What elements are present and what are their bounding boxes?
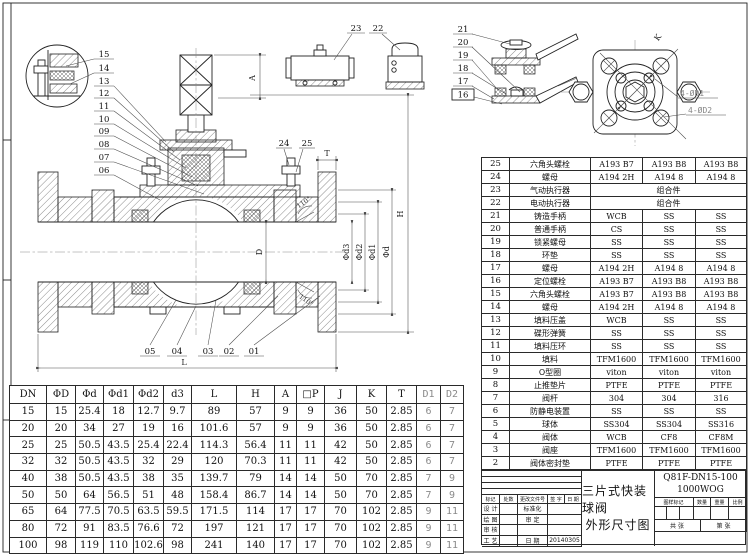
table-cell: 22.4 [164, 437, 192, 454]
table-cell: 70 [325, 520, 357, 537]
table-cell: WCB [591, 210, 643, 223]
table-cell: 25.4 [134, 437, 164, 454]
table-cell: SS [643, 236, 696, 249]
table-cell: 球体 [510, 418, 591, 431]
table-cell: 2.85 [387, 520, 417, 537]
callout-09: 09 [99, 127, 110, 137]
table-cell: A193 B8 [643, 158, 696, 171]
table-cell: 9 [297, 420, 325, 437]
dim-label-L: L [181, 358, 187, 367]
table-cell: 158.4 [192, 487, 237, 504]
table-cell: CF8M [696, 431, 747, 444]
table-cell: SS [696, 327, 747, 340]
callout-15: 15 [99, 50, 110, 60]
table-row: 2阀体密封垫PTFEPTFEPTFE [482, 457, 747, 470]
parts-material-table: 25六角头螺栓A193 B7A193 B8A193 B824螺母A194 2HA… [481, 157, 747, 497]
table-cell: 16 [164, 420, 192, 437]
callout-10: 10 [99, 115, 110, 125]
table-cell: 20 [10, 420, 47, 437]
dim-label-4-D1: 4-ØD1 [680, 88, 704, 98]
pneumatic-actuator-view: 23 [286, 24, 365, 86]
callout-24: 24 [279, 139, 290, 149]
table-cell: 9 [275, 420, 297, 437]
table-cell: viton [591, 366, 643, 379]
table-cell: 76.6 [134, 520, 164, 537]
table-cell: 18 [482, 249, 510, 262]
table-cell: 2.85 [387, 420, 417, 437]
table-cell: 140 [237, 537, 275, 554]
callout-13: 13 [99, 77, 110, 87]
table-cell: 83.5 [104, 520, 134, 537]
table-cell: 11 [297, 437, 325, 454]
table-cell: 23 [482, 184, 510, 197]
table-cell: CF8 [643, 431, 696, 444]
electric-actuator-view: 22 [369, 24, 424, 89]
table-cell: 9.7 [164, 404, 192, 421]
table-cell: 14 [275, 487, 297, 504]
table-cell: 70.3 [237, 454, 275, 471]
table-cell: PTFE [696, 379, 747, 392]
table-cell: SS [696, 405, 747, 418]
table-cell: SS [643, 340, 696, 353]
table-cell: 25 [47, 437, 76, 454]
table-cell: 50 [357, 404, 387, 421]
table-cell: SS [591, 340, 643, 353]
field-approve: 审 定 [518, 515, 548, 526]
callout-01: 01 [249, 347, 260, 357]
table-cell: 50 [357, 437, 387, 454]
table-cell: 11 [275, 437, 297, 454]
table-cell: 2.85 [387, 454, 417, 471]
dimension-table: DNΦDΦdΦd1Φd2d3LHA□PJKTD1D2 151525.41812.… [9, 385, 464, 554]
table-cell: 11 [441, 504, 464, 521]
drawing-title-line1: 三片式快装球阀 [582, 483, 654, 517]
table-cell: SS [696, 210, 747, 223]
table-cell: 7 [441, 420, 464, 437]
header-cell: Φd2 [134, 386, 164, 404]
table-cell: A194 8 [696, 262, 747, 275]
table-cell: 7 [417, 487, 441, 504]
table-cell: SS316 [696, 418, 747, 431]
header-cell: A [275, 386, 297, 404]
drawing-sheet: .s{fill:#fff;stroke:#222;stroke-width:0.… [0, 0, 750, 555]
table-cell: 17 [275, 504, 297, 521]
table-cell: WCB [591, 314, 643, 327]
table-cell: 9 [417, 537, 441, 554]
table-cell: 56.5 [104, 487, 134, 504]
table-cell: SS [696, 249, 747, 262]
table-cell: 六角头螺栓 [510, 158, 591, 171]
table-cell: 72 [47, 520, 76, 537]
table-row: 323250.543.5322912070.3111142502.8567 [10, 454, 464, 471]
table-cell: 304 [643, 392, 696, 405]
table-cell: 114 [237, 504, 275, 521]
table-cell: 50 [357, 420, 387, 437]
table-row: 23气动执行器组合件 [482, 184, 747, 197]
header-cell: ΦD [47, 386, 76, 404]
table-cell: 12.7 [134, 404, 164, 421]
table-cell: 9 [275, 404, 297, 421]
table-cell: PTFE [591, 379, 643, 392]
table-cell: 86.7 [237, 487, 275, 504]
table-row: 8止推垫片PTFEPTFEPTFE [482, 379, 747, 392]
table-cell: SS [643, 210, 696, 223]
table-row: 18环垫SSSSSS [482, 249, 747, 262]
table-cell: 89 [192, 404, 237, 421]
field-check: 审 核 [482, 525, 500, 536]
table-cell: 4 [482, 431, 510, 444]
handle-view-plain [492, 77, 578, 103]
table-cell: 32 [134, 454, 164, 471]
field-quantity: 数量 [694, 498, 711, 507]
table-row: 19锁紧螺母SSSSSS [482, 236, 747, 249]
callout-04: 04 [172, 347, 183, 357]
table-cell: 7 [441, 437, 464, 454]
table-cell: 38 [47, 470, 76, 487]
field-scale: 比例 [729, 498, 747, 507]
table-cell: 43.5 [104, 454, 134, 471]
table-cell: 13 [482, 314, 510, 327]
table-cell: 碟形弹簧 [510, 327, 591, 340]
table-cell: 48 [164, 487, 192, 504]
table-cell: 50 [47, 487, 76, 504]
table-cell: A193 B8 [696, 275, 747, 288]
table-cell: 气动执行器 [510, 184, 591, 197]
table-cell: 11 [441, 520, 464, 537]
table-row: 14螺母A194 2HA194 8A194 8 [482, 301, 747, 314]
header-cell: d3 [164, 386, 192, 404]
table-cell: SS [643, 327, 696, 340]
table-cell: 17 [297, 504, 325, 521]
table-cell: 20 [482, 223, 510, 236]
header-cell: D1 [417, 386, 441, 404]
callout-25: 25 [302, 139, 313, 149]
dim-label-D: D [255, 249, 264, 255]
table-cell: 18 [104, 404, 134, 421]
callout-18: 18 [458, 64, 469, 74]
table-cell: 7 [441, 454, 464, 471]
table-cell: A194 8 [643, 171, 696, 184]
callout-20: 20 [458, 38, 469, 48]
table-cell: 螺母 [510, 171, 591, 184]
table-cell: A193 B7 [591, 288, 643, 301]
dim-label-phi-d1: Φd1 [368, 244, 377, 261]
table-cell: 70 [325, 537, 357, 554]
table-cell: 7 [441, 404, 464, 421]
table-cell: 19 [134, 420, 164, 437]
table-cell: 100 [10, 537, 47, 554]
field-draw: 绘 图 [482, 515, 500, 526]
dim-label-4-D2: 4-ØD2 [688, 105, 712, 115]
table-cell: A194 8 [696, 301, 747, 314]
table-cell: 定位螺栓 [510, 275, 591, 288]
table-cell: A193 B8 [643, 275, 696, 288]
table-cell: 2 [482, 457, 510, 470]
table-cell: A194 2H [591, 171, 643, 184]
table-cell: 50 [325, 470, 357, 487]
header-cell: J [325, 386, 357, 404]
table-cell: 11 [275, 454, 297, 471]
table-cell: 7 [417, 470, 441, 487]
table-cell: 35 [164, 470, 192, 487]
table-cell: 防静电装置 [510, 405, 591, 418]
table-cell: A193 B8 [696, 288, 747, 301]
table-cell: 14 [275, 470, 297, 487]
table-cell: A194 8 [696, 171, 747, 184]
table-cell: 17 [482, 262, 510, 275]
table-cell: 36 [325, 404, 357, 421]
table-cell: 填料压盖 [510, 314, 591, 327]
table-cell: 16 [482, 275, 510, 288]
field-weight: 重量 [711, 498, 729, 507]
table-cell: TFM1600 [643, 444, 696, 457]
table-cell: 铸造手柄 [510, 210, 591, 223]
table-cell: SS304 [643, 418, 696, 431]
header-cell: H [237, 386, 275, 404]
table-cell: 阀座 [510, 444, 591, 457]
table-row: 17螺母A194 2HA194 8A194 8 [482, 262, 747, 275]
table-cell: 98 [47, 537, 76, 554]
dim-label-H: H [396, 210, 405, 217]
callout-07: 07 [99, 153, 110, 163]
table-cell: SS [696, 314, 747, 327]
table-row: 202034271916101.6579936502.8567 [10, 420, 464, 437]
header-cell: □P [297, 386, 325, 404]
table-cell: 17 [275, 537, 297, 554]
table-cell: 填料压环 [510, 340, 591, 353]
table-row: 24螺母A194 2HA194 8A194 8 [482, 171, 747, 184]
table-cell: SS304 [591, 418, 643, 431]
table-cell: 25.4 [76, 404, 104, 421]
table-cell: 50 [325, 487, 357, 504]
table-cell: 11 [297, 454, 325, 471]
table-cell: 17 [297, 537, 325, 554]
table-cell: TFM1600 [696, 444, 747, 457]
table-cell: SS [643, 314, 696, 327]
field-date2: 日 期 [518, 536, 548, 547]
table-row: 9O型圈vitonvitonviton [482, 366, 747, 379]
model-grid: Q81F-DN15-100 1000WOG 图样标记 数量 重量 比例 共 张 … [654, 471, 747, 546]
table-cell: viton [696, 366, 747, 379]
table-cell: 241 [192, 537, 237, 554]
table-cell: 102 [357, 504, 387, 521]
table-row: 11填料压环SSSSSS [482, 340, 747, 353]
table-cell: SS [696, 223, 747, 236]
table-cell: 91 [76, 520, 104, 537]
table-cell: 316 [696, 392, 747, 405]
table-cell: 2.85 [387, 504, 417, 521]
table-cell: 102.6 [134, 537, 164, 554]
field-count: 处数 [500, 495, 518, 504]
callout-14: 14 [99, 64, 110, 74]
field-design: 设 计 [482, 504, 500, 515]
table-cell: SS [696, 340, 747, 353]
table-row: 3阀座TFM1600TFM1600TFM1600 [482, 444, 747, 457]
table-cell: 139.7 [192, 470, 237, 487]
table-cell: 14 [297, 487, 325, 504]
table-cell: SS [591, 236, 643, 249]
table-cell: 50 [10, 487, 47, 504]
callout-22: 22 [373, 24, 384, 34]
table-cell: O型圈 [510, 366, 591, 379]
table-row: 10填料TFM1600TFM1600TFM1600 [482, 353, 747, 366]
table-cell: 43.5 [104, 470, 134, 487]
table-cell: 25 [10, 437, 47, 454]
table-cell: 六角头螺栓 [510, 288, 591, 301]
table-cell: CS [591, 223, 643, 236]
table-cell: A193 B8 [696, 158, 747, 171]
table-row: 656477.570.563.559.5171.51141717701022.8… [10, 504, 464, 521]
table-cell: 70 [357, 487, 387, 504]
product-model-cell: Q81F-DN15-100 1000WOG [654, 471, 747, 498]
table-cell: 171.5 [192, 504, 237, 521]
table-cell: 17 [297, 520, 325, 537]
field-date: 日 期 [565, 495, 582, 504]
header-cell: K [357, 386, 387, 404]
table-cell: 6 [417, 437, 441, 454]
dim-label-phi-d: Φd [382, 246, 391, 258]
table-cell: SS [591, 249, 643, 262]
callout-05: 05 [145, 347, 156, 357]
table-cell: A193 B7 [591, 275, 643, 288]
table-cell: 6 [482, 405, 510, 418]
table-row: 16定位螺栓A193 B7A193 B8A193 B8 [482, 275, 747, 288]
header-cell: DN [10, 386, 47, 404]
header-cell: L [192, 386, 237, 404]
table-cell: 6 [417, 454, 441, 471]
table-cell: 102 [357, 537, 387, 554]
table-cell: 阀体密封垫 [510, 457, 591, 470]
header-cell: D2 [441, 386, 464, 404]
table-cell: 50.5 [76, 470, 104, 487]
field-change-doc: 更改文件号 [518, 495, 548, 504]
detail-circle-view [26, 45, 88, 107]
table-cell: 6 [417, 420, 441, 437]
table-cell: 14 [482, 301, 510, 314]
table-cell: 22 [482, 197, 510, 210]
table-cell: 19 [482, 236, 510, 249]
header-cell: Φd1 [104, 386, 134, 404]
header-cell: Φd [76, 386, 104, 404]
table-cell: 14 [297, 470, 325, 487]
approval-grid: 标记 处数 更改文件号 签 字 日 期 设 计 标准化 绘 图 审 定 审 核 [482, 471, 582, 546]
table-cell: viton [643, 366, 696, 379]
table-cell: 阀杆 [510, 392, 591, 405]
table-cell: SS [696, 236, 747, 249]
table-cell: 56.4 [237, 437, 275, 454]
callout-17: 17 [458, 77, 469, 87]
callout-02: 02 [224, 347, 235, 357]
table-cell: 50.5 [76, 454, 104, 471]
table-cell: 2.85 [387, 404, 417, 421]
table-cell: WCB [591, 431, 643, 444]
table-cell: PTFE [643, 457, 696, 470]
table-cell: SS [643, 223, 696, 236]
table-cell: 21 [482, 210, 510, 223]
table-cell: 25 [482, 158, 510, 171]
table-row: 10098119110102.6982411401717701022.85911 [10, 537, 464, 554]
table-cell: 27 [104, 420, 134, 437]
drawing-title: 三片式快装球阀 外形尺寸图 [582, 471, 655, 546]
table-cell: A194 8 [643, 262, 696, 275]
table-cell: 57 [237, 404, 275, 421]
table-cell: PTFE [696, 457, 747, 470]
table-cell: 2.85 [387, 470, 417, 487]
table-cell: A194 8 [643, 301, 696, 314]
table-cell: 98 [164, 537, 192, 554]
table-cell: 10 [482, 353, 510, 366]
table-cell: 8 [482, 379, 510, 392]
table-cell: 12 [482, 327, 510, 340]
field-date-value: 20140305 [548, 536, 582, 547]
table-cell: 17 [275, 520, 297, 537]
table-cell: 15 [10, 404, 47, 421]
table-cell: 77.5 [76, 504, 104, 521]
table-cell: 121 [237, 520, 275, 537]
field-total-sheet: 共 张 [654, 520, 701, 532]
table-cell: 11 [482, 340, 510, 353]
table-row: 12碟形弹簧SSSSSS [482, 327, 747, 340]
table-cell: 20 [47, 420, 76, 437]
table-cell: 9 [297, 404, 325, 421]
table-cell: 6 [417, 404, 441, 421]
table-cell: 2.85 [387, 437, 417, 454]
table-cell: 304 [591, 392, 643, 405]
table-cell: 组合件 [591, 197, 747, 210]
field-standardize: 标准化 [518, 504, 548, 515]
table-cell: 42 [325, 437, 357, 454]
table-cell: 5 [482, 418, 510, 431]
table-cell: 螺母 [510, 301, 591, 314]
table-cell: A194 2H [591, 301, 643, 314]
table-cell: 24 [482, 171, 510, 184]
table-cell: 32 [47, 454, 76, 471]
handle-view-cast [492, 34, 578, 74]
table-cell: 114.3 [192, 437, 237, 454]
title-block: 标记 处数 更改文件号 签 字 日 期 设 计 标准化 绘 图 审 定 审 核 [481, 470, 746, 545]
table-cell: 57 [237, 420, 275, 437]
callout-16: 16 [458, 91, 469, 101]
table-cell: 63.5 [134, 504, 164, 521]
table-cell: TFM1600 [591, 444, 643, 457]
table-row: 151525.41812.79.789579936502.8567 [10, 404, 464, 421]
table-cell: 11 [441, 537, 464, 554]
table-cell: 64 [76, 487, 104, 504]
field-page-sheet: 第 张 [701, 520, 747, 532]
table-cell: 120 [192, 454, 237, 471]
table-cell: PTFE [643, 379, 696, 392]
table-cell: 3 [482, 444, 510, 457]
callout-06: 06 [99, 166, 110, 176]
table-cell: 59.5 [164, 504, 192, 521]
table-cell: 119 [76, 537, 104, 554]
table-cell: 32 [10, 454, 47, 471]
table-row: 403850.543.53835139.779141450702.8579 [10, 470, 464, 487]
table-cell: 阀体 [510, 431, 591, 444]
table-cell: 101.6 [192, 420, 237, 437]
table-cell: 环垫 [510, 249, 591, 262]
table-row: 13填料压盖WCBSSSS [482, 314, 747, 327]
table-cell: 15 [482, 288, 510, 301]
table-cell: 2.85 [387, 487, 417, 504]
flange-face-view: K 4-ØD1 4-ØD2 [560, 32, 726, 146]
table-row: 50506456.55148158.486.7141450702.8579 [10, 487, 464, 504]
dim-label-phi-d3: Φd3 [342, 244, 351, 261]
table-cell: A193 B8 [643, 288, 696, 301]
table-cell: 止推垫片 [510, 379, 591, 392]
field-sign: 签 字 [548, 495, 565, 504]
table-cell: 64 [47, 504, 76, 521]
